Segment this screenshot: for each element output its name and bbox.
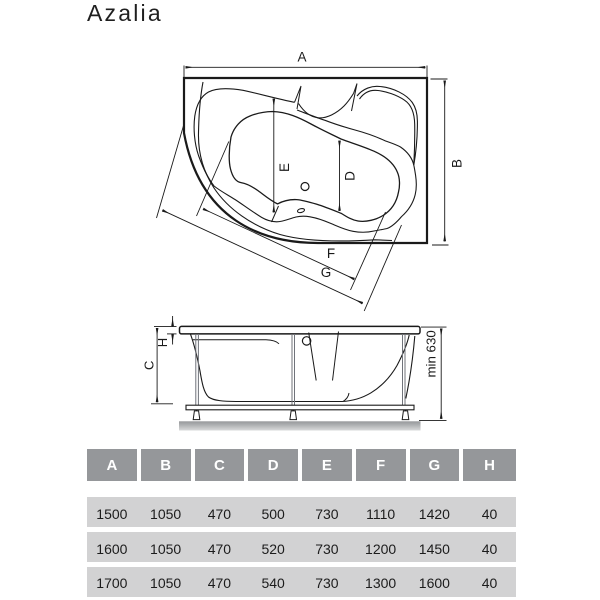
svg-text:min 630: min 630 (423, 330, 438, 377)
svg-text:F: F (327, 246, 335, 261)
svg-text:A: A (297, 50, 306, 65)
svg-text:D: D (342, 171, 357, 181)
svg-text:E: E (277, 163, 292, 172)
svg-text:B: B (449, 159, 464, 168)
svg-text:C: C (142, 361, 157, 370)
svg-text:G: G (321, 265, 332, 280)
